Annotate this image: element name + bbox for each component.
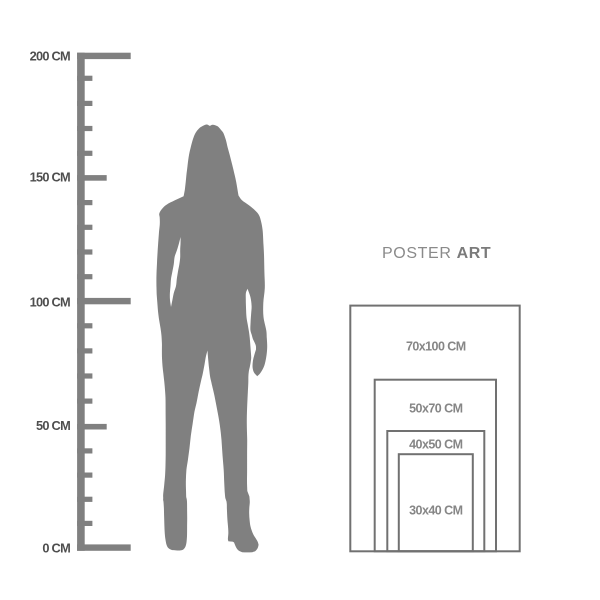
svg-text:100 CM: 100 CM [30, 294, 70, 309]
svg-text:50x70 CM: 50x70 CM [409, 402, 462, 416]
svg-text:0 CM: 0 CM [42, 541, 70, 556]
svg-text:200 CM: 200 CM [30, 49, 70, 64]
svg-text:40x50 CM: 40x50 CM [409, 438, 462, 452]
svg-text:50 CM: 50 CM [36, 418, 70, 433]
svg-text:150 CM: 150 CM [30, 169, 70, 184]
svg-text:POSTER ART: POSTER ART [382, 245, 491, 262]
svg-text:70x100 CM: 70x100 CM [406, 340, 466, 354]
svg-text:30x40 CM: 30x40 CM [409, 504, 462, 518]
